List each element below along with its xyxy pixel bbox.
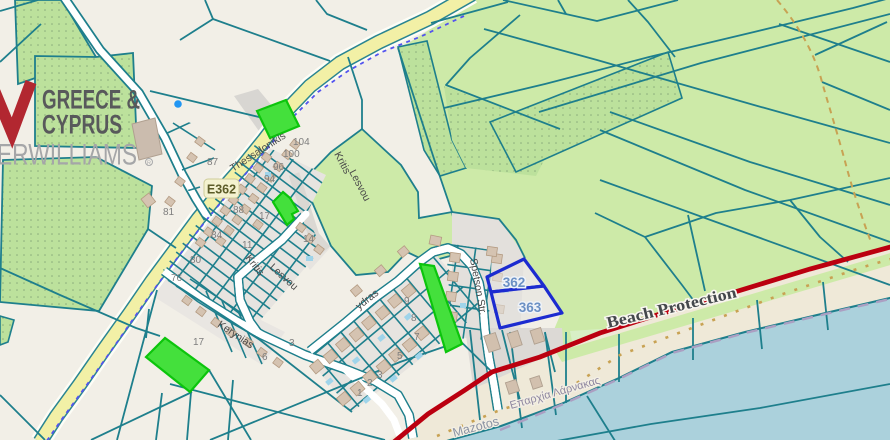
svg-text:94: 94: [264, 174, 276, 185]
svg-text:8: 8: [411, 313, 417, 324]
svg-text:11: 11: [242, 240, 253, 251]
svg-text:104: 104: [293, 137, 310, 148]
svg-text:87: 87: [207, 157, 219, 168]
svg-text:1: 1: [357, 388, 363, 399]
svg-text:14: 14: [303, 234, 315, 245]
svg-text:2: 2: [367, 378, 373, 389]
svg-text:81: 81: [163, 207, 175, 218]
svg-text:5: 5: [397, 351, 403, 362]
svg-text:3: 3: [377, 370, 383, 381]
svg-text:3: 3: [289, 338, 295, 349]
svg-text:R: R: [147, 161, 151, 167]
svg-text:17: 17: [193, 337, 205, 348]
svg-text:96: 96: [273, 162, 285, 173]
svg-text:362: 362: [503, 275, 526, 290]
svg-text:6: 6: [262, 352, 268, 363]
svg-text:100: 100: [283, 149, 300, 160]
svg-text:9: 9: [404, 296, 410, 307]
svg-text:ERWILLIAMS: ERWILLIAMS: [0, 139, 137, 172]
svg-text:363: 363: [519, 300, 542, 315]
svg-text:CYPRUS: CYPRUS: [42, 110, 122, 140]
svg-text:84: 84: [211, 230, 223, 241]
svg-text:80: 80: [190, 255, 202, 266]
svg-text:17: 17: [259, 211, 271, 222]
svg-text:7: 7: [414, 332, 420, 343]
svg-text:88: 88: [233, 205, 245, 216]
svg-text:E362: E362: [207, 183, 236, 197]
svg-text:76: 76: [171, 273, 183, 284]
